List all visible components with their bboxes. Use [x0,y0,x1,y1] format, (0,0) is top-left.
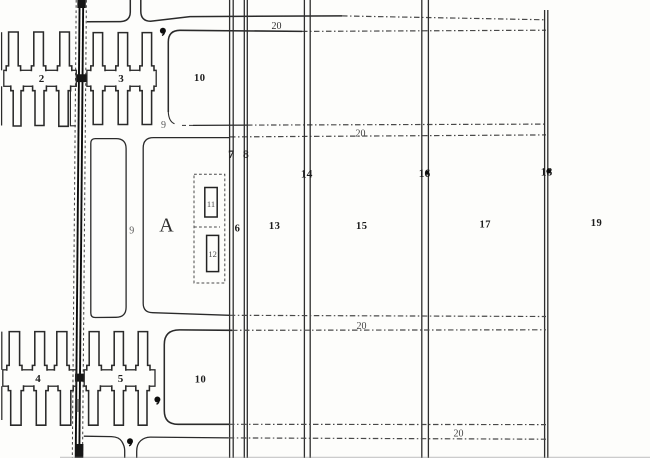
svg-text:6: 6 [235,224,240,235]
svg-text:18: 18 [541,167,553,179]
svg-text:11: 11 [207,199,215,209]
svg-text:2: 2 [39,73,45,85]
svg-text:16: 16 [419,168,431,180]
svg-text:12: 12 [208,249,217,259]
svg-text:4: 4 [35,373,41,385]
svg-text:13: 13 [269,221,281,232]
svg-text:19: 19 [591,218,603,229]
svg-text:20: 20 [357,321,367,332]
svg-text:5: 5 [118,373,124,385]
svg-text:A: A [159,215,174,237]
svg-text:7: 7 [228,149,234,161]
svg-text:20: 20 [356,129,366,140]
svg-text:10: 10 [194,73,206,84]
svg-text:14: 14 [301,169,313,181]
svg-text:20: 20 [272,21,282,32]
svg-text:9: 9 [161,120,166,131]
svg-text:20: 20 [454,429,464,440]
svg-text:17: 17 [480,220,492,231]
svg-text:9: 9 [129,225,134,236]
svg-text:10: 10 [195,374,207,385]
svg-text:15: 15 [356,221,368,232]
svg-text:3: 3 [118,73,124,85]
svg-text:8: 8 [243,149,249,161]
